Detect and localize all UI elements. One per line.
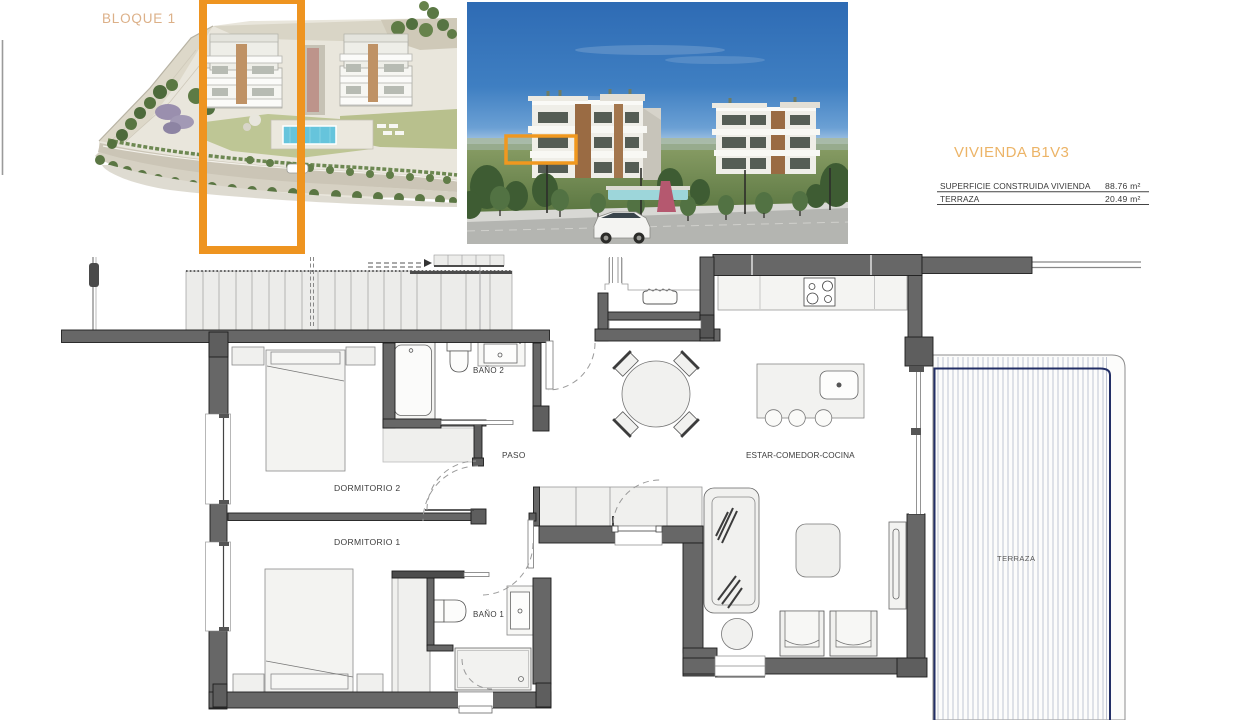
svg-text:BLOQUE 1: BLOQUE 1 (102, 11, 176, 26)
svg-text:20.49 m²: 20.49 m² (1105, 194, 1141, 204)
svg-text:VIVIENDA B1V3: VIVIENDA B1V3 (954, 144, 1069, 161)
svg-text:PASO: PASO (502, 450, 526, 460)
svg-text:DORMITORIO 2: DORMITORIO 2 (334, 483, 400, 493)
svg-text:BAÑO 1: BAÑO 1 (473, 610, 504, 619)
svg-text:TERRAZA: TERRAZA (940, 194, 980, 204)
svg-text:TERRAZA: TERRAZA (997, 554, 1036, 563)
svg-text:DORMITORIO 1: DORMITORIO 1 (334, 537, 400, 547)
svg-text:BAÑO 2: BAÑO 2 (473, 366, 504, 375)
svg-text:SUPERFICIE CONSTRUIDA VIVIENDA: SUPERFICIE CONSTRUIDA VIVIENDA (940, 181, 1091, 191)
svg-text:ESTAR-COMEDOR-COCINA: ESTAR-COMEDOR-COCINA (746, 451, 855, 460)
svg-text:88.76 m²: 88.76 m² (1105, 181, 1141, 191)
